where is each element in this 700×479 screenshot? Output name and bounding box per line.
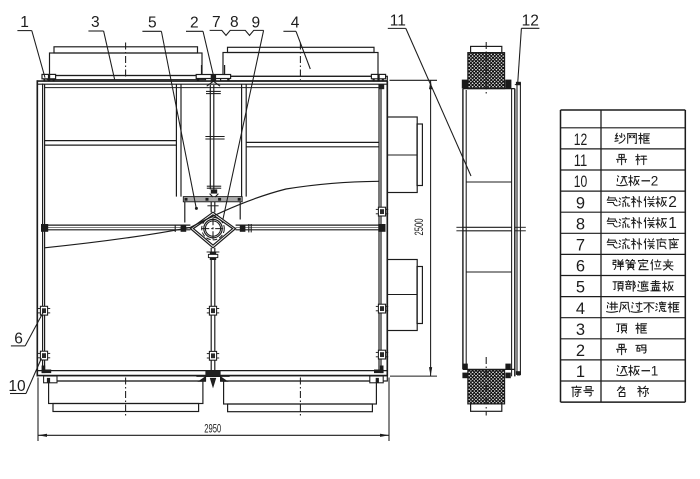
svg-text:6: 6 [14,330,23,347]
svg-text:5: 5 [148,15,157,32]
svg-text:2: 2 [668,194,677,211]
svg-text:1: 1 [668,215,677,232]
svg-text:11: 11 [390,13,406,30]
svg-text:7: 7 [576,237,585,255]
svg-text:4: 4 [576,300,585,318]
svg-text:12: 12 [522,13,539,30]
svg-text:1: 1 [651,363,659,378]
svg-text:12: 12 [574,131,588,149]
svg-text:11: 11 [574,152,588,170]
svg-text:5: 5 [576,279,585,297]
svg-text:8: 8 [576,215,585,233]
svg-text:3: 3 [91,14,100,31]
svg-text:2: 2 [576,342,585,360]
svg-text:1: 1 [576,363,585,381]
svg-text:4: 4 [291,15,300,32]
svg-text:10: 10 [8,378,26,395]
svg-text:7: 7 [212,14,221,31]
svg-text:2: 2 [190,15,199,32]
svg-text:8: 8 [230,14,239,31]
svg-text:3: 3 [576,321,585,339]
svg-text:6: 6 [576,258,585,276]
svg-text:2950: 2950 [204,423,221,435]
svg-text:2: 2 [651,173,659,188]
svg-text:2500: 2500 [414,219,426,236]
svg-text:9: 9 [576,194,585,212]
svg-text:1: 1 [20,14,29,31]
svg-text:10: 10 [574,173,588,191]
svg-text:9: 9 [251,15,260,32]
